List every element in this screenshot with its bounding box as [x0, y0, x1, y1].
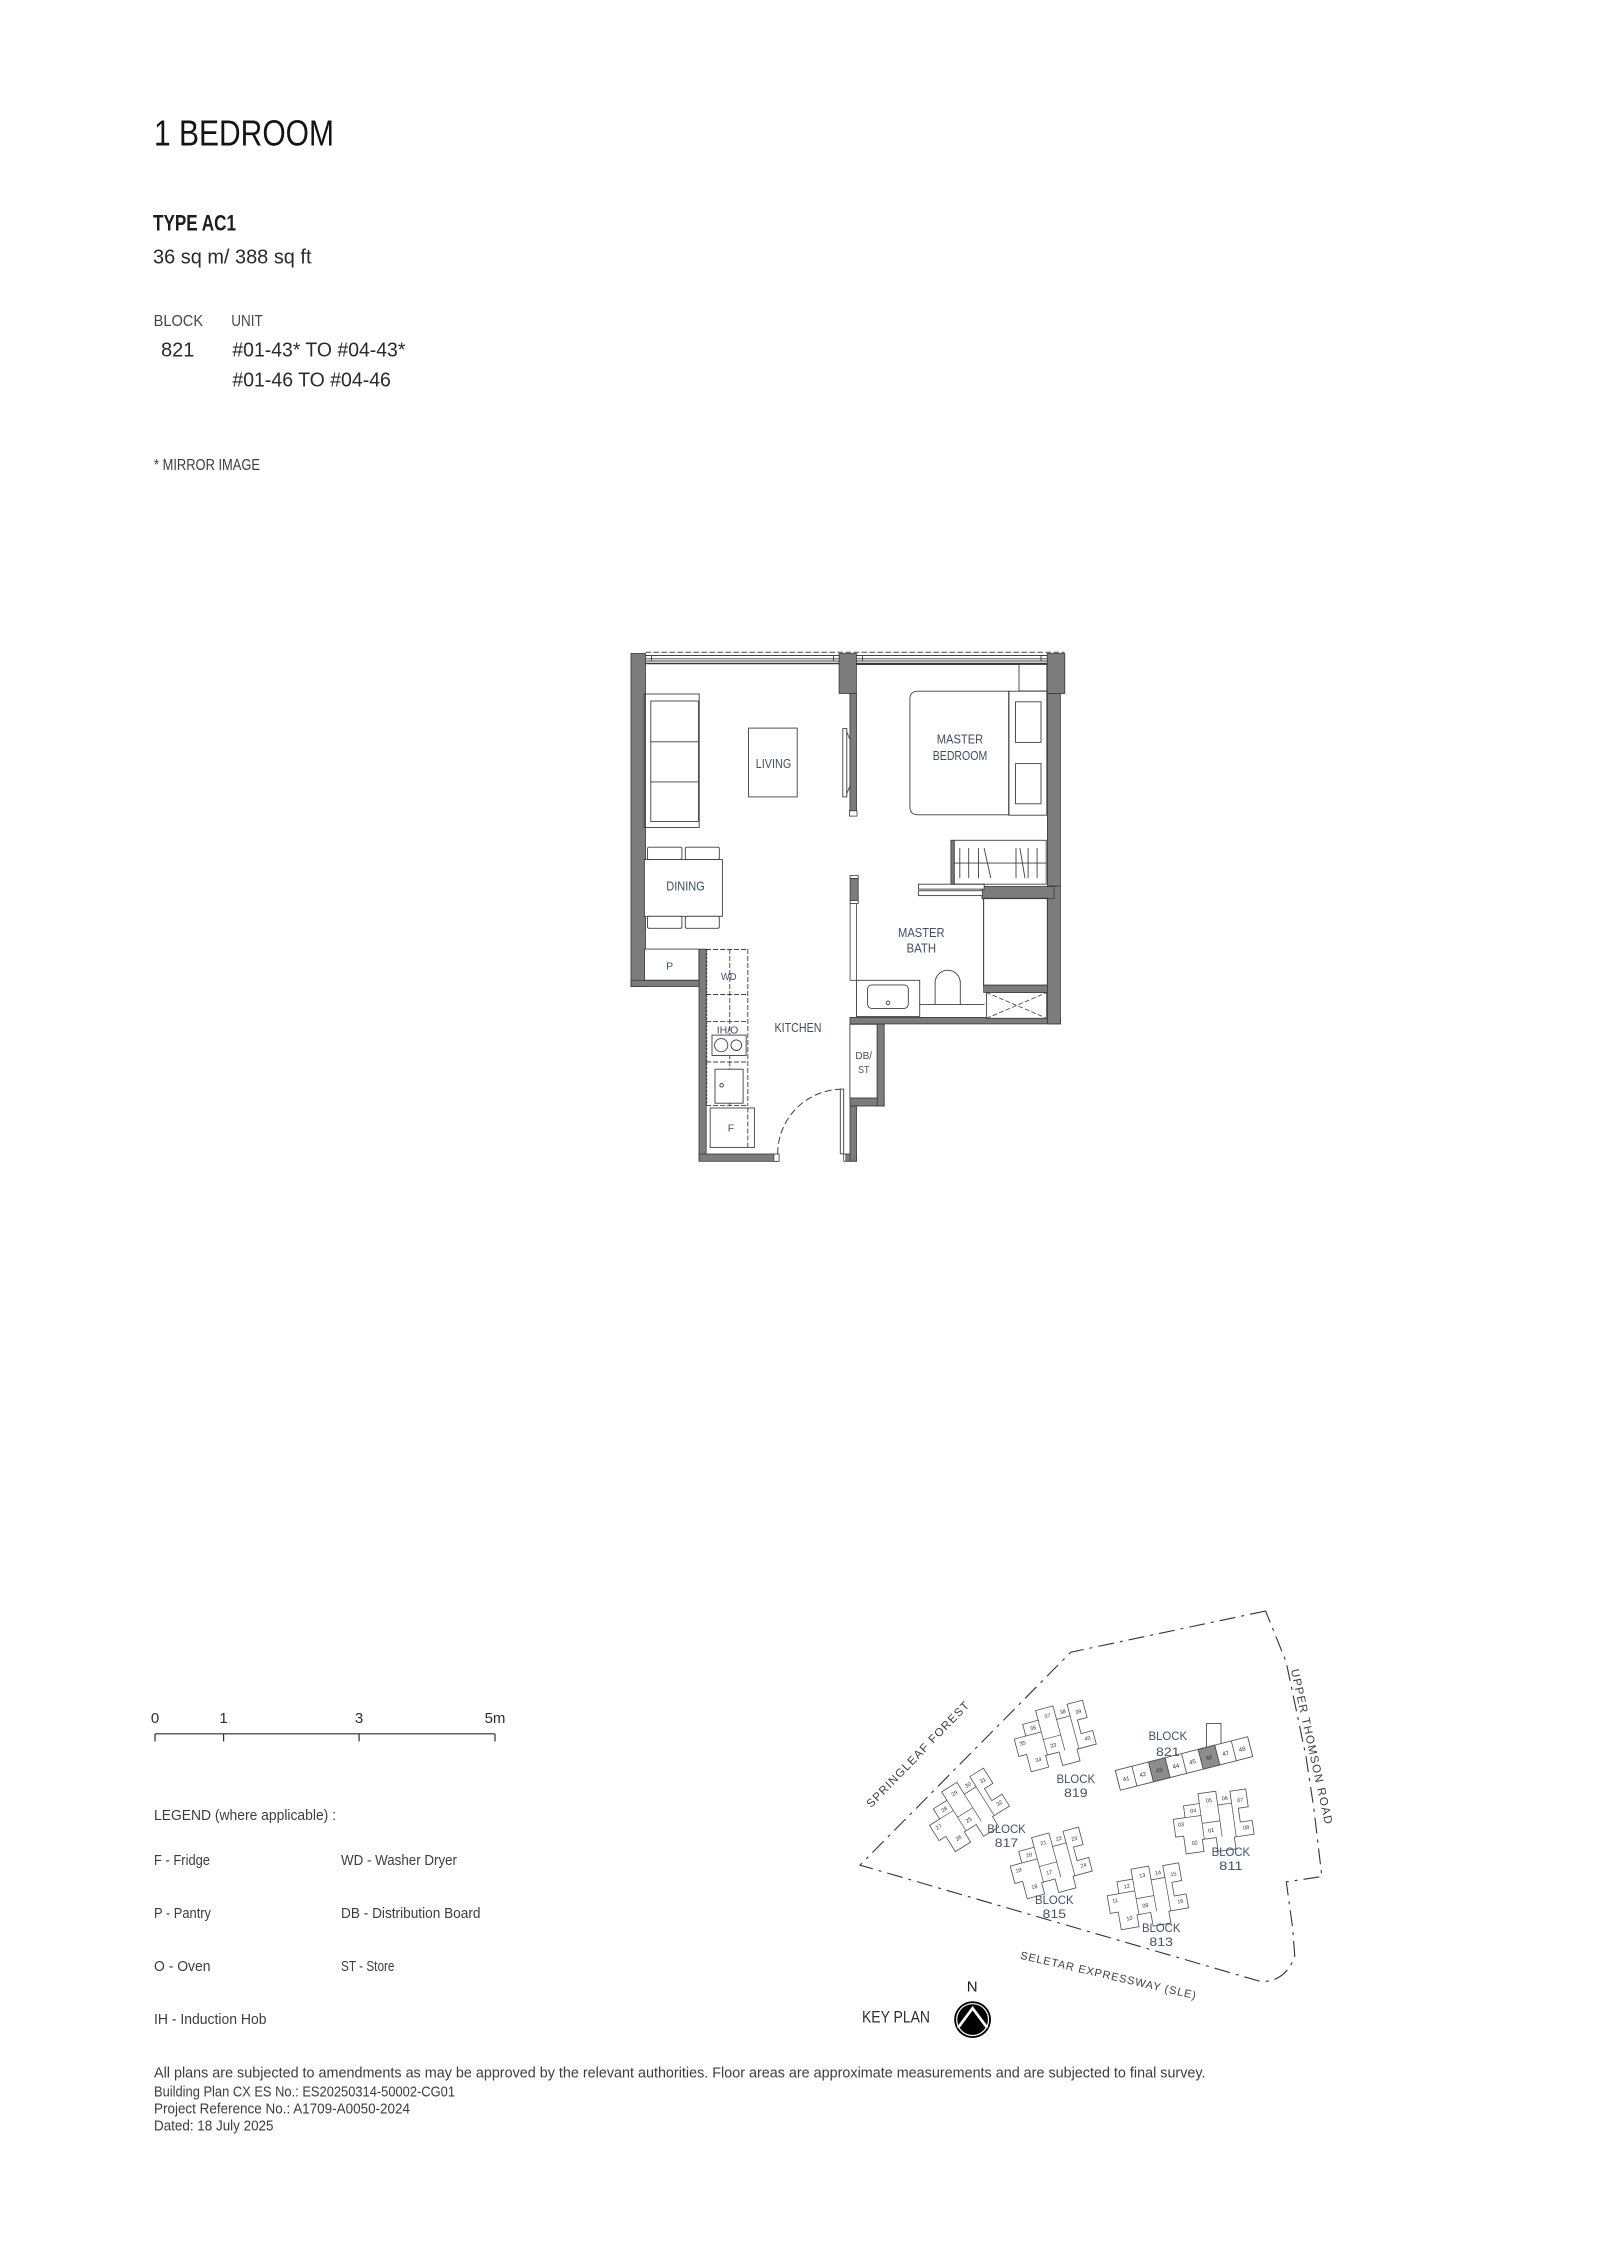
- svg-text:SELETAR EXPRESSWAY (SLE): SELETAR EXPRESSWAY (SLE): [1019, 1950, 1198, 2002]
- svg-text:MASTER: MASTER: [937, 732, 984, 746]
- svg-text:O - Oven: O - Oven: [154, 1958, 211, 1975]
- svg-text:06: 06: [1221, 1796, 1228, 1803]
- svg-text:13: 13: [1139, 1873, 1146, 1880]
- svg-text:3: 3: [355, 1710, 363, 1727]
- svg-text:0: 0: [151, 1710, 159, 1727]
- svg-text:ST: ST: [858, 1064, 870, 1076]
- svg-text:10: 10: [1126, 1916, 1133, 1923]
- svg-text:05: 05: [1206, 1798, 1213, 1805]
- svg-text:P: P: [666, 961, 673, 973]
- svg-text:All plans are subjected to ame: All plans are subjected to amendments as…: [154, 2066, 1206, 2082]
- svg-text:P - Pantry: P - Pantry: [154, 1905, 211, 1922]
- svg-text:WD - Washer Dryer: WD - Washer Dryer: [341, 1852, 457, 1869]
- svg-text:01: 01: [1208, 1828, 1215, 1835]
- svg-text:DB/: DB/: [855, 1050, 872, 1062]
- svg-text:ST - Store: ST - Store: [341, 1958, 395, 1975]
- svg-text:BLOCK: BLOCK: [987, 1822, 1026, 1836]
- svg-text:1: 1: [219, 1710, 227, 1727]
- svg-text:Building Plan CX ES No.: ES202: Building Plan CX ES No.: ES20250314-5000…: [154, 2085, 455, 2101]
- svg-text:5m: 5m: [485, 1710, 506, 1727]
- svg-text:821: 821: [1156, 1745, 1180, 1759]
- svg-text:817: 817: [995, 1836, 1019, 1850]
- svg-text:03: 03: [1178, 1822, 1185, 1829]
- svg-text:KEY PLAN: KEY PLAN: [862, 2008, 930, 2026]
- svg-text:14: 14: [1155, 1870, 1162, 1877]
- svg-text:22: 22: [1055, 1836, 1062, 1843]
- svg-text:11: 11: [1112, 1898, 1119, 1905]
- svg-text:IH - Induction Hob: IH - Induction Hob: [154, 2011, 267, 2028]
- svg-text:BATH: BATH: [907, 941, 937, 955]
- svg-text:BLOCK: BLOCK: [154, 313, 204, 330]
- svg-text:DB - Distribution Board: DB - Distribution Board: [341, 1905, 481, 1922]
- svg-text:16: 16: [1177, 1899, 1184, 1906]
- svg-text:* MIRROR IMAGE: * MIRROR IMAGE: [154, 457, 260, 474]
- svg-text:LEGEND (where applicable) :: LEGEND (where applicable) :: [154, 1807, 336, 1824]
- svg-text:BLOCK: BLOCK: [1149, 1729, 1188, 1743]
- svg-text:38: 38: [1059, 1709, 1066, 1716]
- svg-text:04: 04: [1190, 1808, 1197, 1815]
- svg-text:F - Fridge: F - Fridge: [154, 1852, 210, 1869]
- svg-text:08: 08: [1243, 1825, 1250, 1832]
- svg-text:12: 12: [1123, 1884, 1130, 1891]
- svg-text:Project Reference No.: A1709-A: Project Reference No.: A1709-A0050-2024: [154, 2102, 410, 2118]
- svg-text:15: 15: [1170, 1871, 1177, 1878]
- svg-text:821: 821: [161, 340, 194, 362]
- svg-text:UPPER THOMSON ROAD: UPPER THOMSON ROAD: [1288, 1668, 1334, 1826]
- svg-text:BEDROOM: BEDROOM: [933, 749, 988, 763]
- svg-text:UNIT: UNIT: [231, 313, 263, 330]
- svg-text:DINING: DINING: [666, 880, 705, 894]
- svg-text:36 sq m/ 388 sq ft: 36 sq m/ 388 sq ft: [153, 246, 312, 269]
- svg-text:#01-43* TO #04-43*: #01-43* TO #04-43*: [232, 340, 405, 362]
- svg-text:N: N: [967, 1979, 978, 1996]
- svg-text:BLOCK: BLOCK: [1035, 1893, 1074, 1907]
- svg-text:02: 02: [1191, 1840, 1198, 1847]
- svg-text:819: 819: [1064, 1786, 1088, 1800]
- svg-text:30: 30: [964, 1782, 972, 1790]
- svg-text:813: 813: [1149, 1935, 1173, 1949]
- svg-text:BLOCK: BLOCK: [1057, 1772, 1096, 1786]
- svg-text:TYPE AC1: TYPE AC1: [153, 211, 236, 236]
- svg-text:LIVING: LIVING: [756, 757, 792, 771]
- svg-text:07: 07: [1237, 1797, 1244, 1804]
- svg-text:#01-46 TO #04-46: #01-46 TO #04-46: [232, 370, 391, 392]
- svg-text:WD: WD: [721, 971, 737, 983]
- svg-text:BLOCK: BLOCK: [1142, 1921, 1181, 1935]
- svg-text:1 BEDROOM: 1 BEDROOM: [154, 113, 334, 154]
- svg-text:MASTER: MASTER: [898, 926, 945, 940]
- svg-text:09: 09: [1142, 1903, 1149, 1910]
- svg-text:KITCHEN: KITCHEN: [775, 1021, 822, 1035]
- svg-text:Dated: 18 July 2025: Dated: 18 July 2025: [154, 2119, 274, 2135]
- svg-text:811: 811: [1219, 1859, 1243, 1873]
- svg-text:BLOCK: BLOCK: [1212, 1845, 1251, 1859]
- svg-text:F: F: [728, 1123, 734, 1135]
- svg-text:815: 815: [1043, 1907, 1067, 1921]
